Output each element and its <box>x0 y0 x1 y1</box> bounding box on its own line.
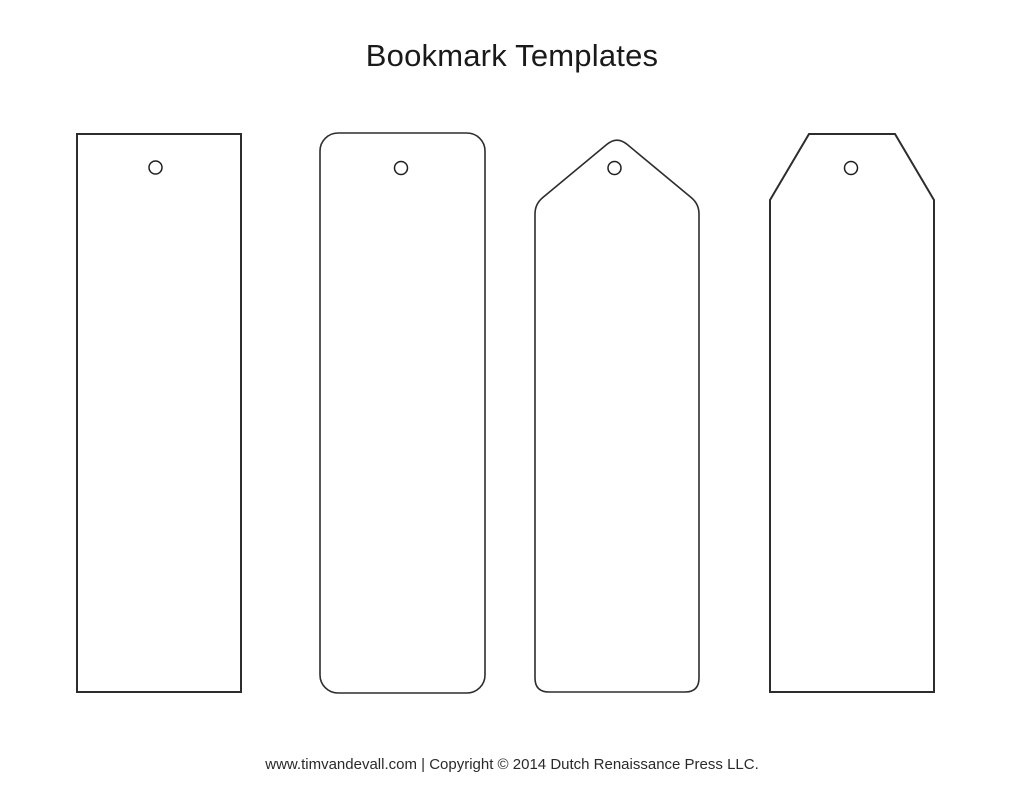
templates-row <box>0 0 1024 791</box>
punch-hole <box>845 162 858 175</box>
bookmark-template-rounded-rectangle <box>318 131 487 695</box>
bookmark-template-pointed-tag <box>533 134 701 695</box>
footer-credit: www.timvandevall.com | Copyright © 2014 … <box>0 757 1024 773</box>
bookmark-outline <box>770 134 934 692</box>
bookmark-templates-page: Bookmark Templates www.timvandevall.com … <box>0 0 1024 791</box>
bookmark-outline <box>535 140 699 692</box>
punch-hole <box>608 162 621 175</box>
bookmark-template-rectangle <box>75 132 243 694</box>
bookmark-template-chamfered-tag <box>768 132 936 694</box>
bookmark-outline <box>77 134 241 692</box>
punch-hole <box>395 162 408 175</box>
bookmark-outline <box>320 133 485 693</box>
punch-hole <box>149 161 162 174</box>
